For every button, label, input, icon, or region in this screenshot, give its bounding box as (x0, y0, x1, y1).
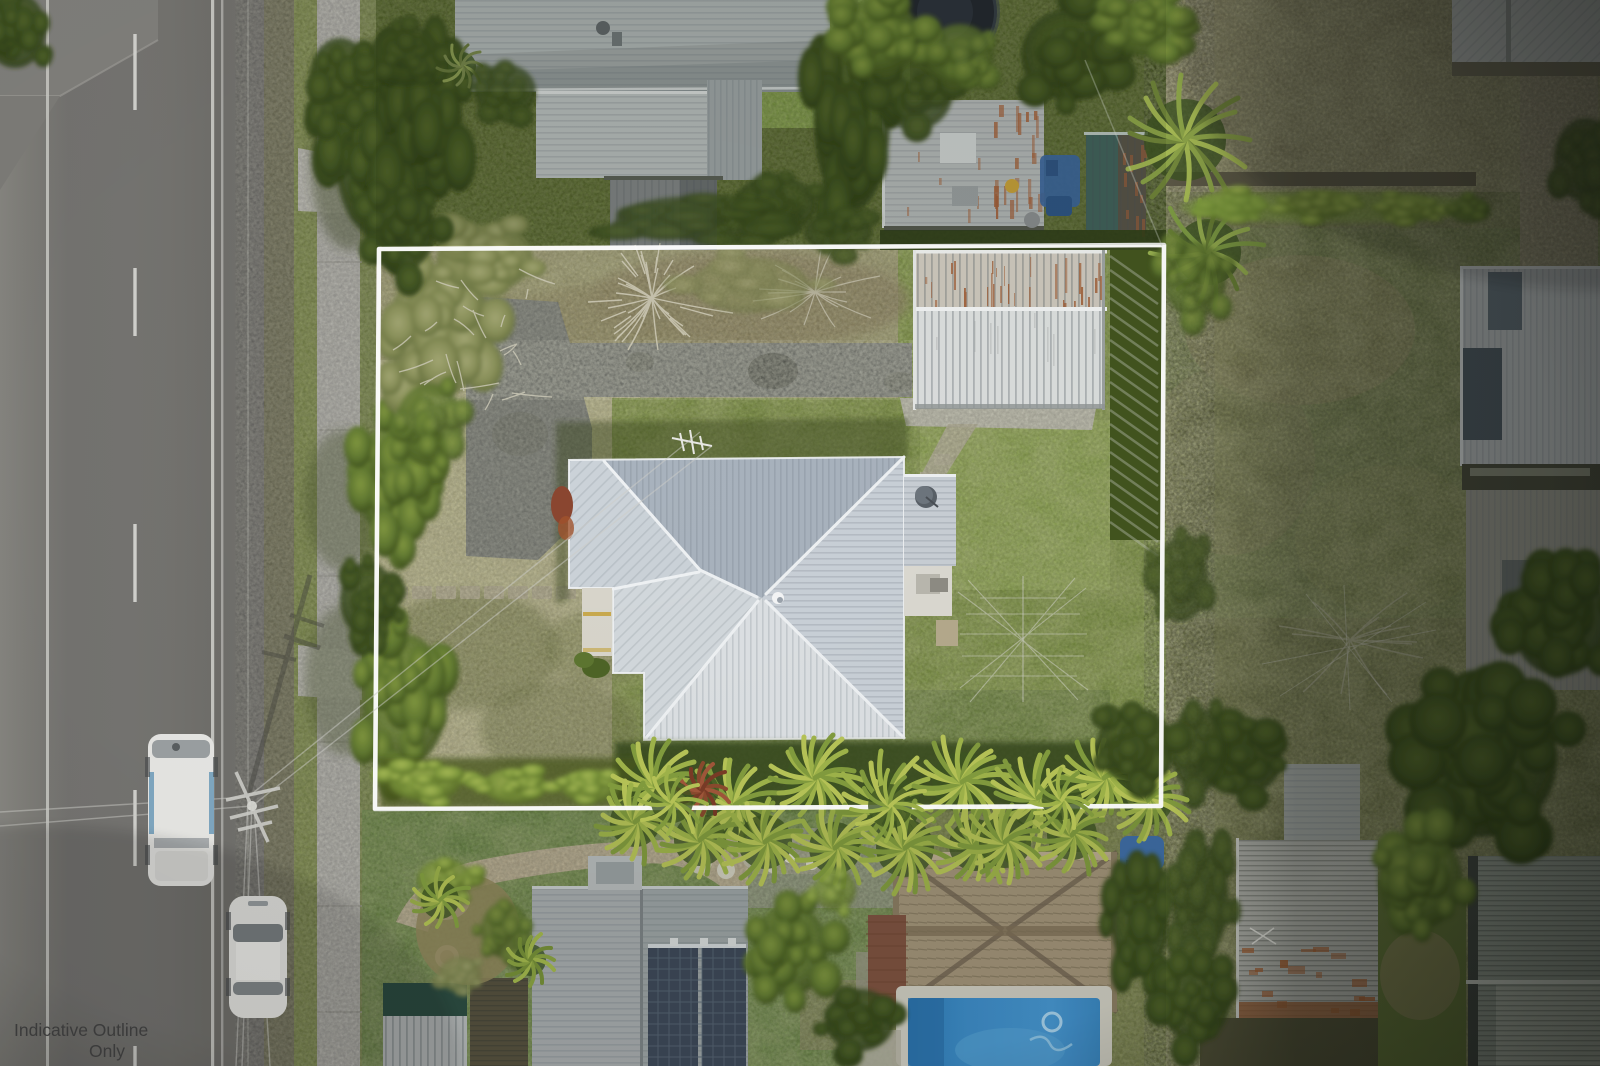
svg-text:Indicative Outline: Indicative Outline (14, 1020, 148, 1040)
svg-text:Only: Only (89, 1041, 125, 1061)
